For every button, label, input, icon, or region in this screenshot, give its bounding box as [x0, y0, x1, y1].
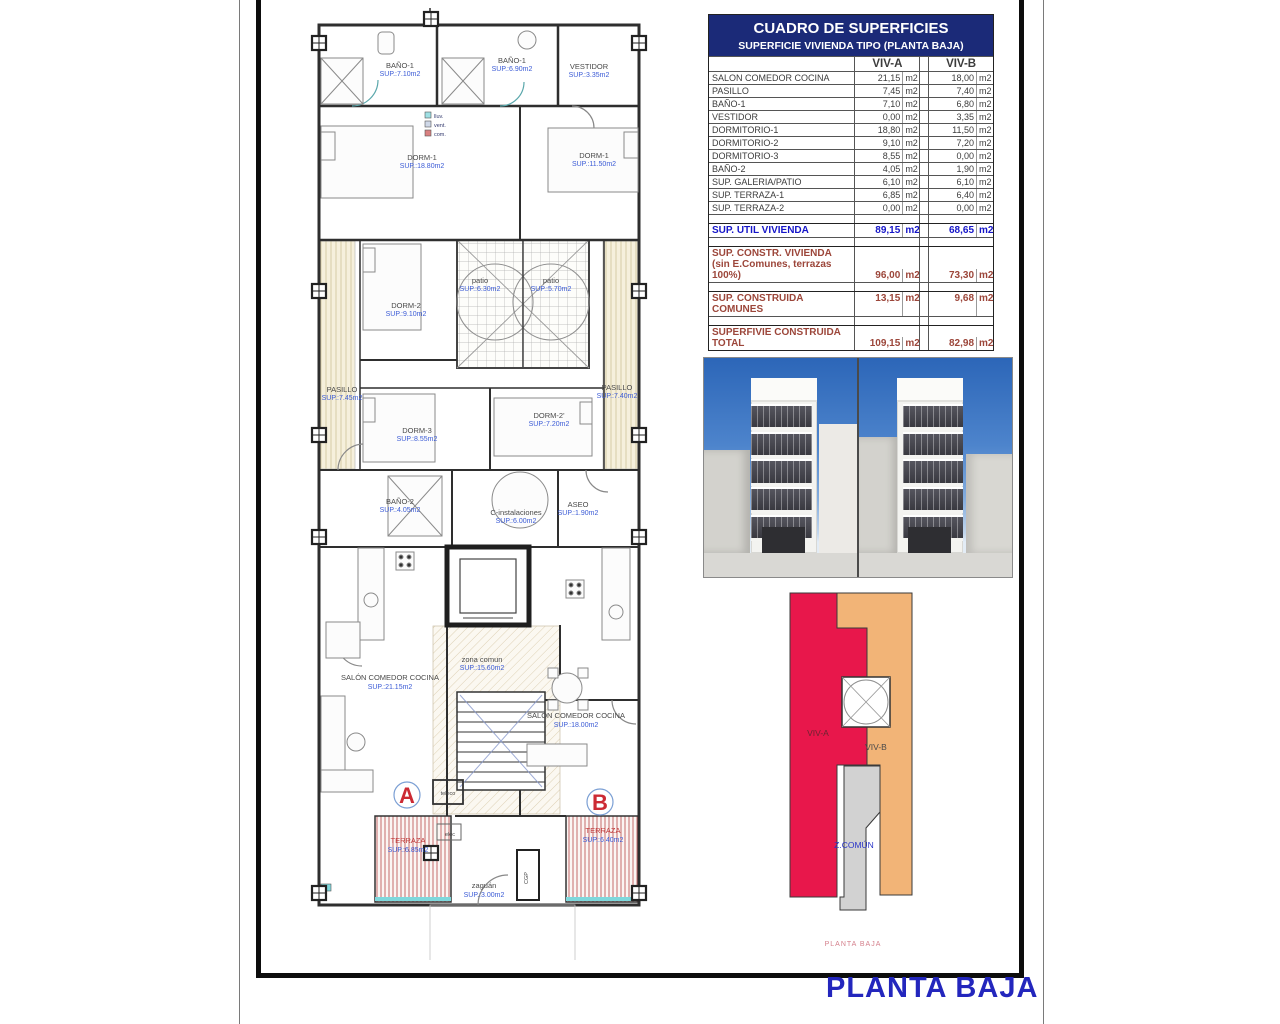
zone-comun: [840, 766, 880, 910]
building-entrance: [762, 527, 805, 553]
adjacent-building-right: [819, 424, 857, 553]
unit-label: m2: [976, 137, 993, 149]
row-label: BAÑO-1: [709, 98, 854, 110]
value-viv-a: 8,55: [855, 150, 902, 162]
apartment-building-facade: [751, 378, 817, 553]
table-row: PASILLO 7,45m2 7,40m2: [709, 84, 993, 97]
unit-label: m2: [976, 189, 993, 201]
balcony-band: [751, 459, 812, 485]
table-spacer-row: [709, 316, 993, 325]
building-render-left: [704, 358, 857, 577]
room-dorm2b-sup: SUP.:7.20m2: [529, 421, 570, 428]
unit-label: m2: [902, 85, 919, 97]
balcony-band: [903, 404, 964, 430]
room-dorm1-b-sup: SUP.:11.50m2: [572, 161, 616, 168]
balcony-band: [751, 487, 812, 513]
sheet-title: PLANTA BAJA: [826, 972, 1038, 1005]
room-aseo: ASEO: [568, 500, 589, 509]
room-terraza-a-sup: SUP.:6.85m2: [388, 847, 429, 854]
summary-label: SUP. CONSTRUIDA COMUNES: [709, 292, 854, 316]
room-bano1-b: BAÑO-1: [498, 56, 526, 65]
room-salon-b-sup: SUP.:18.00m2: [554, 722, 599, 729]
room-patio-a: patio: [472, 276, 488, 285]
label-cgp: CGP: [524, 872, 530, 884]
row-label: VESTIDOR: [709, 111, 854, 123]
summary-label: SUP. UTIL VIVIENDA: [709, 224, 854, 237]
room-bano1-a-sup: SUP.:7.10m2: [380, 71, 421, 78]
value-viv-b: 7,40: [929, 85, 976, 97]
unit-label: m2: [976, 85, 993, 97]
room-vestidor: VESTIDOR: [570, 62, 609, 71]
value-viv-a: 0,00: [855, 111, 902, 123]
room-zaguan: zaguán: [472, 881, 497, 890]
room-pasillo-b: PASILLO: [602, 383, 633, 392]
row-label: PASILLO: [709, 85, 854, 97]
page-fold-line-right: [1043, 0, 1044, 1024]
room-pasillo-a-sup: SUP.:7.45m2: [322, 395, 363, 402]
diagram-label-z-comun: Z.COMÚN: [834, 840, 874, 850]
table-title: CUADRO DE SUPERFICIES: [709, 15, 993, 39]
unit-label: m2: [902, 202, 919, 214]
patio-area: [457, 240, 589, 368]
room-salon-b: SALÓN COMEDOR COCINA: [527, 711, 625, 720]
table-row: BAÑO-1 7,10m2 6,80m2: [709, 97, 993, 110]
value-viv-a: 7,10: [855, 98, 902, 110]
value-viv-b: 0,00: [929, 202, 976, 214]
row-label: SUP. GALERIA/PATIO: [709, 176, 854, 188]
floor-plan-svg: lluv. vent. com. BAÑO-1 SUP.:7.10m2 BAÑO…: [305, 8, 655, 960]
summary-label: SUP. CONSTR. VIVIENDA: [712, 248, 851, 259]
summary-value-viv-a: 96,00: [855, 269, 902, 282]
row-label: BAÑO-2: [709, 163, 854, 175]
room-bano1-b-sup: SUP.:6.90m2: [492, 66, 533, 73]
balcony-band: [903, 487, 964, 513]
table-spacer-row: [709, 214, 993, 223]
diagram-label-viv-a: VIV-A: [807, 728, 829, 738]
unit-label: m2: [976, 124, 993, 136]
unit-label: m2: [976, 202, 993, 214]
building-renders: [703, 357, 1013, 578]
room-dorm2-sup: SUP.:9.10m2: [386, 311, 427, 318]
unit-label: m2: [976, 72, 993, 84]
room-patio-b-sup: SUP.:5.70m2: [531, 286, 572, 293]
room-zona-comun: zona comun: [462, 655, 503, 664]
value-viv-b: 18,00: [929, 72, 976, 84]
room-dorm1-b: DORM-1: [579, 151, 609, 160]
legend-lluv: lluv.: [434, 114, 444, 120]
unit-label: m2: [976, 163, 993, 175]
building-entrance: [908, 527, 951, 553]
label-elec: elec: [445, 832, 455, 838]
table-row: SALON COMEDOR COCINA 21,15m2 18,00m2: [709, 71, 993, 84]
staircase: [457, 692, 545, 790]
room-dorm2: DORM-2: [391, 301, 421, 310]
value-viv-a: 18,80: [855, 124, 902, 136]
room-dorm1-a: DORM-1: [407, 153, 437, 162]
room-dorm2b: DORM-2': [533, 411, 565, 420]
table-subtitle: SUPERFICIE VIVIENDA TIPO (PLANTA BAJA): [709, 39, 993, 56]
col-header-viv-b: VIV-B: [929, 57, 993, 71]
unit-label: m2: [976, 176, 993, 188]
summary-label-line2: TOTAL: [712, 338, 851, 349]
summary-value-viv-b: 73,30: [929, 269, 976, 282]
building-attic: [751, 378, 817, 403]
summary-row-total: SUPERFIVIE CONSTRUIDA TOTAL 109,15m2 82,…: [709, 325, 993, 350]
unit-label: m2: [902, 111, 919, 123]
value-viv-a: 0,00: [855, 202, 902, 214]
room-terraza-b-sup: SUP.:6.40m2: [583, 837, 624, 844]
legend-vent: vent.: [434, 123, 446, 129]
row-label: SUP. TERRAZA-2: [709, 202, 854, 214]
unit-label: m2: [902, 150, 919, 162]
table-row: DORMITORIO-1 18,80m2 11,50m2: [709, 123, 993, 136]
balcony-band: [751, 404, 812, 430]
value-viv-a: 9,10: [855, 137, 902, 149]
page-fold-line-left: [239, 0, 240, 1024]
street-ground: [859, 553, 1012, 577]
table-row: SUP. TERRAZA-2 0,00m2 0,00m2: [709, 201, 993, 214]
unit-label: m2: [976, 224, 993, 237]
value-viv-a: 7,45: [855, 85, 902, 97]
room-pasillo-a: PASILLO: [327, 385, 358, 394]
unit-letter-a: A: [399, 783, 415, 808]
value-viv-a: 21,15: [855, 72, 902, 84]
building-render-right: [857, 358, 1012, 577]
unit-label: m2: [902, 72, 919, 84]
room-bano2-sup: SUP.:4.05m2: [380, 507, 421, 514]
unit-label: m2: [976, 98, 993, 110]
summary-label-line2: (sin E.Comunes, terrazas 100%): [712, 259, 851, 281]
row-label: DORMITORIO-3: [709, 150, 854, 162]
row-label: DORMITORIO-2: [709, 137, 854, 149]
table-row: VESTIDOR 0,00m2 3,35m2: [709, 110, 993, 123]
diagram-label-viv-b: VIV-B: [865, 742, 887, 752]
value-viv-b: 11,50: [929, 124, 976, 136]
room-bano2: BAÑO-2: [386, 497, 414, 506]
unit-label: m2: [976, 337, 993, 350]
room-aseo-sup: SUP.:1.90m2: [558, 510, 599, 517]
adjacent-building-right: [966, 454, 1012, 553]
summary-value-viv-b: 9,68: [929, 292, 976, 316]
unit-label: m2: [902, 189, 919, 201]
balcony-band: [903, 459, 964, 485]
value-viv-b: 6,40: [929, 189, 976, 201]
table-row: SUP. GALERIA/PATIO 6,10m2 6,10m2: [709, 175, 993, 188]
row-label: DORMITORIO-1: [709, 124, 854, 136]
value-viv-b: 3,35: [929, 111, 976, 123]
summary-row-util: SUP. UTIL VIVIENDA 89,15m2 68,65m2: [709, 223, 993, 237]
table-spacer-row: [709, 282, 993, 291]
room-salon-a-sup: SUP.:21.15m2: [368, 684, 413, 691]
table-row: BAÑO-2 4,05m2 1,90m2: [709, 162, 993, 175]
elevator-shaft: [447, 547, 529, 625]
row-label: SUP. TERRAZA-1: [709, 189, 854, 201]
unit-label: m2: [976, 150, 993, 162]
value-viv-b: 6,80: [929, 98, 976, 110]
surfaces-table: CUADRO DE SUPERFICIES SUPERFICIE VIVIEND…: [708, 14, 994, 351]
room-terraza-b: TERRAZA: [585, 826, 620, 835]
label-teleco: teleco: [441, 791, 456, 797]
value-viv-b: 1,90: [929, 163, 976, 175]
summary-value-viv-a: 13,15: [855, 292, 902, 316]
adjacent-building-left: [704, 450, 750, 553]
unit-label: m2: [902, 269, 919, 282]
col-header-viv-a: VIV-A: [855, 57, 919, 71]
apartment-building-facade: [897, 378, 963, 553]
room-pasillo-b-sup: SUP.:7.40m2: [597, 393, 638, 400]
summary-value-viv-b: 82,98: [929, 337, 976, 350]
room-dorm3-sup: SUP.:8.55m2: [397, 436, 438, 443]
unit-label: m2: [902, 163, 919, 175]
zone-diagram-svg: VIV-A VIV-B Z.COMÚN PLANTA BAJA: [775, 585, 990, 960]
street-ground: [704, 553, 857, 577]
table-row: DORMITORIO-3 8,55m2 0,00m2: [709, 149, 993, 162]
summary-row-constr: SUP. CONSTR. VIVIENDA (sin E.Comunes, te…: [709, 246, 993, 282]
room-zaguan-sup: SUP.:3.00m2: [464, 892, 505, 899]
building-attic: [897, 378, 963, 403]
row-label: SALON COMEDOR COCINA: [709, 72, 854, 84]
table-row: SUP. TERRAZA-1 6,85m2 6,40m2: [709, 188, 993, 201]
room-patio-b: patio: [543, 276, 559, 285]
unit-label: m2: [902, 176, 919, 188]
unit-label: m2: [902, 137, 919, 149]
room-instalaciones: C-instalaciones: [490, 508, 542, 517]
unit-label: m2: [976, 111, 993, 123]
unit-label: m2: [976, 269, 993, 282]
unit-label: m2: [902, 124, 919, 136]
summary-label: SUPERFIVIE CONSTRUIDA: [712, 327, 851, 338]
summary-value-viv-b: 68,65: [929, 224, 976, 237]
unit-label: m2: [902, 98, 919, 110]
value-viv-a: 6,10: [855, 176, 902, 188]
unit-label: m2: [902, 337, 919, 350]
unit-label: m2: [976, 292, 993, 316]
value-viv-b: 7,20: [929, 137, 976, 149]
table-spacer-row: [709, 237, 993, 246]
balcony-band: [751, 432, 812, 458]
room-dorm1-a-sup: SUP.:18.80m2: [400, 163, 445, 170]
room-dorm3: DORM-3: [402, 426, 432, 435]
room-bano1-a: BAÑO-1: [386, 61, 414, 70]
room-patio-a-sup: SUP.:6.30m2: [460, 286, 501, 293]
value-viv-b: 6,10: [929, 176, 976, 188]
room-salon-a: SALÓN COMEDOR COCINA: [341, 673, 439, 682]
table-row: DORMITORIO-2 9,10m2 7,20m2: [709, 136, 993, 149]
unit-label: m2: [902, 224, 919, 237]
value-viv-a: 6,85: [855, 189, 902, 201]
plan-legend: lluv. vent. com.: [425, 112, 446, 138]
table-column-headers: VIV-A VIV-B: [709, 56, 993, 71]
summary-value-viv-a: 109,15: [855, 337, 902, 350]
balcony-band: [903, 432, 964, 458]
unit-label: m2: [902, 292, 919, 316]
legend-com: com.: [434, 132, 446, 138]
adjacent-building-left: [859, 437, 899, 553]
unit-letter-b: B: [592, 790, 608, 815]
room-instalaciones-sup: SUP.:6.00m2: [496, 518, 537, 525]
value-viv-a: 4,05: [855, 163, 902, 175]
summary-row-comunes: SUP. CONSTRUIDA COMUNES 13,15m2 9,68m2: [709, 291, 993, 316]
diagram-caption: PLANTA BAJA: [825, 941, 882, 948]
room-zona-comun-sup: SUP.:15.60m2: [460, 665, 505, 672]
room-terraza-a: TERRAZA: [390, 836, 425, 845]
summary-value-viv-a: 89,15: [855, 224, 902, 237]
room-vestidor-sup: SUP.:3.35m2: [569, 72, 610, 79]
diagram-patio: [842, 677, 890, 727]
value-viv-b: 0,00: [929, 150, 976, 162]
